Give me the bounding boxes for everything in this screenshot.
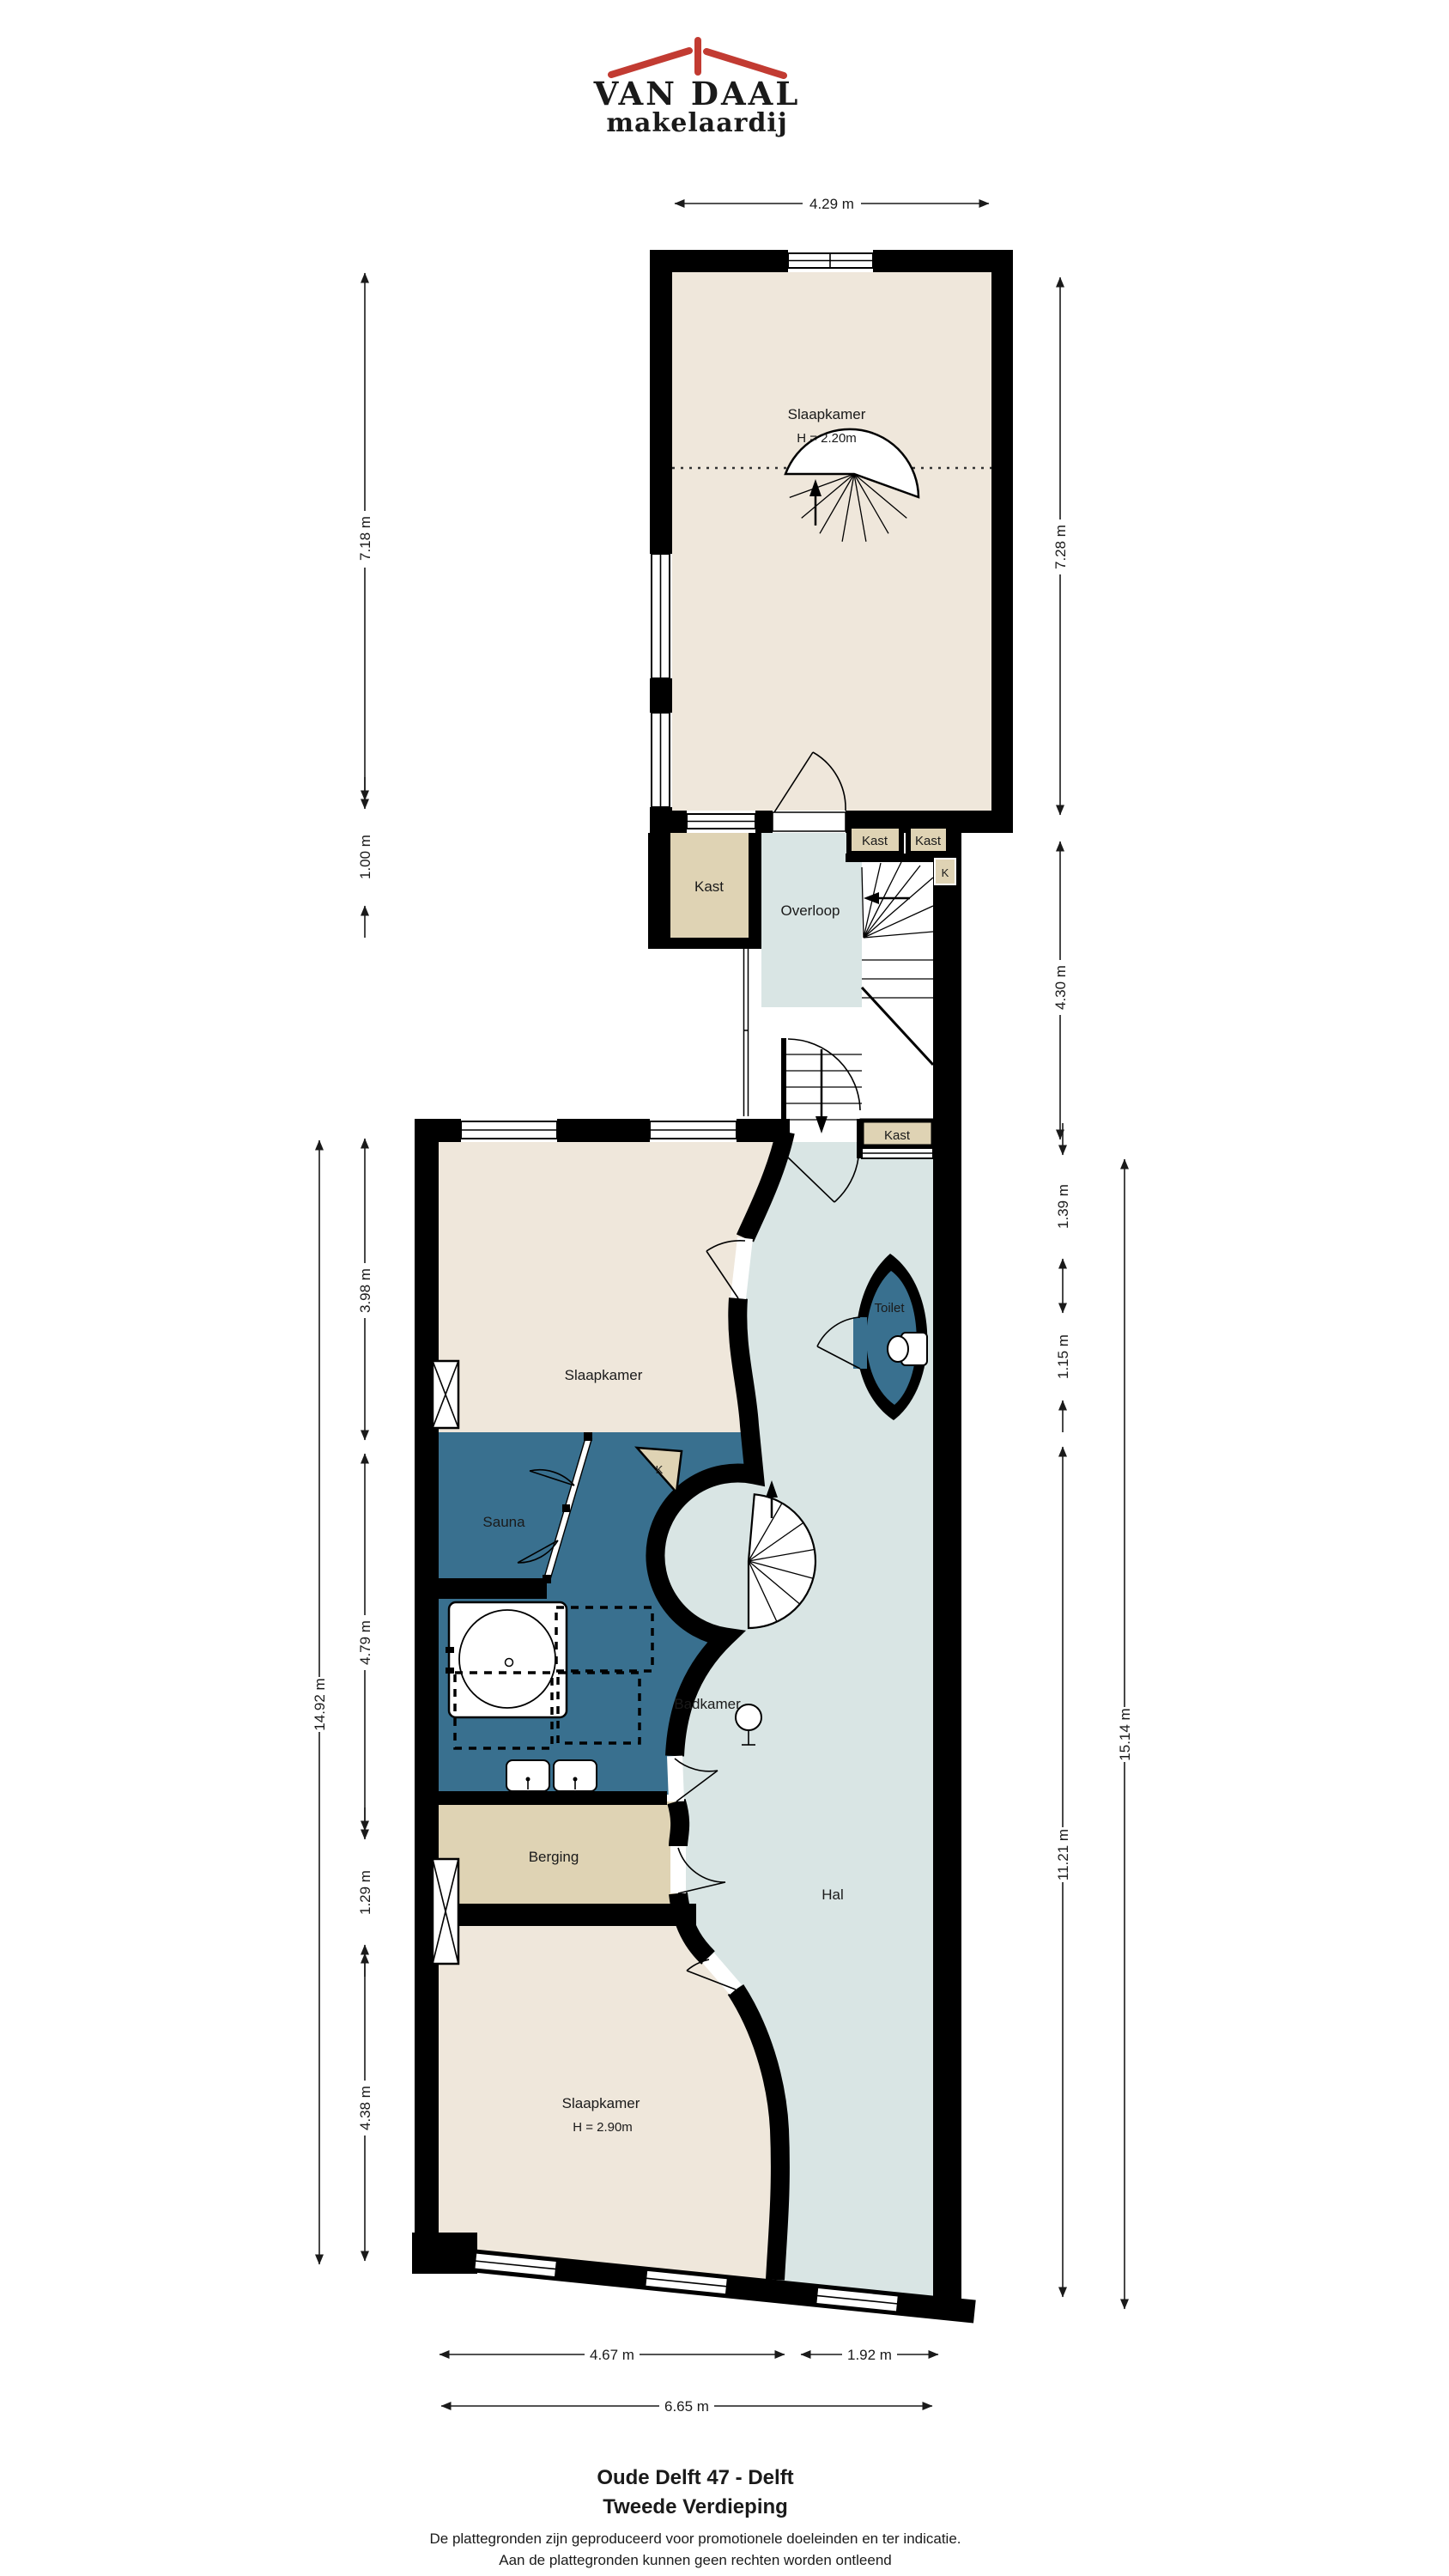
badkamer-label: Badkamer [674,1696,741,1712]
sauna-label: Sauna [482,1514,525,1530]
dim-right-seg1: 1.39 m [1055,1184,1071,1229]
toilet-icon [888,1333,927,1365]
stair-railing [744,949,749,1116]
slaapkamer-top-label: Slaapkamer [788,406,866,422]
slaapkamer-mid-label: Slaapkamer [565,1367,643,1383]
dim-right-seg2: 1.15 m [1055,1334,1071,1379]
dim-left-upper: 7.18 m [357,516,373,561]
hal-label: Hal [822,1886,844,1903]
disclaimer-line-1: De plattegronden zijn geproduceerd voor … [429,2530,961,2547]
kast-mid-label: Kast [694,878,724,895]
floorplan-page: VAN DAAL makelaardij [0,0,1449,2576]
slaapkamer-bottom-label: Slaapkamer [562,2095,640,2111]
plan-subtitle: Tweede Verdieping [603,2495,788,2518]
bathtub-icon [446,1602,567,1717]
floorplan-drawing: VAN DAAL makelaardij [0,0,1449,2576]
slaapkamer-bottom-height: H = 2.90m [573,2120,633,2135]
logo-name: VAN DAAL [593,75,801,112]
kast-lower-label: Kast [884,1128,911,1143]
toilet-door-gap [853,1317,867,1369]
kast-small-2-label: Kast [915,834,942,848]
dim-left-seg1: 3.98 m [357,1268,373,1313]
kast-small-1-label: Kast [862,834,888,848]
dim-right-upper: 7.28 m [1052,525,1069,569]
upper-staircase-icon [862,862,933,1118]
dim-left-total: 14.92 m [312,1678,328,1730]
disclaimer-line-2: Aan de plattegronden kunnen geen rechten… [499,2552,891,2568]
berging-label: Berging [529,1849,579,1865]
overloop-label: Overloop [781,902,840,919]
lower-staircase-icon [781,1038,862,1142]
footer-block: Oude Delft 47 - Delft Tweede Verdieping … [429,2466,961,2568]
toilet-label: Toilet [874,1301,905,1315]
roof-icon [611,40,784,76]
dim-left-seg2: 4.79 m [357,1620,373,1665]
van-daal-logo: VAN DAAL makelaardij [593,40,801,138]
dim-bottom-left: 4.67 m [590,2347,634,2363]
logo-subtitle: makelaardij [606,108,787,138]
dim-top-width: 4.29 m [809,196,854,212]
dim-left-kast: 1.00 m [357,835,373,879]
dim-bottom-total: 6.65 m [664,2398,709,2415]
dim-right-total: 15.14 m [1117,1708,1133,1760]
dim-left-seg3: 1.29 m [357,1870,373,1915]
dim-bottom-right: 1.92 m [847,2347,892,2363]
room-slaapkamer-top-fill [672,272,991,811]
wall-closet-2 [433,1859,458,1964]
k-niche-label: K [942,866,949,879]
dim-left-seg4: 4.38 m [357,2086,373,2130]
dim-right-stairs: 4.30 m [1052,965,1069,1010]
slaapkamer-top-height: H = 2.20m [797,431,857,446]
k-closet-label: K [656,1463,664,1476]
plan-title: Oude Delft 47 - Delft [597,2466,793,2489]
wall-closet-1 [433,1361,458,1428]
dim-right-seg3: 11.21 m [1055,1829,1071,1880]
